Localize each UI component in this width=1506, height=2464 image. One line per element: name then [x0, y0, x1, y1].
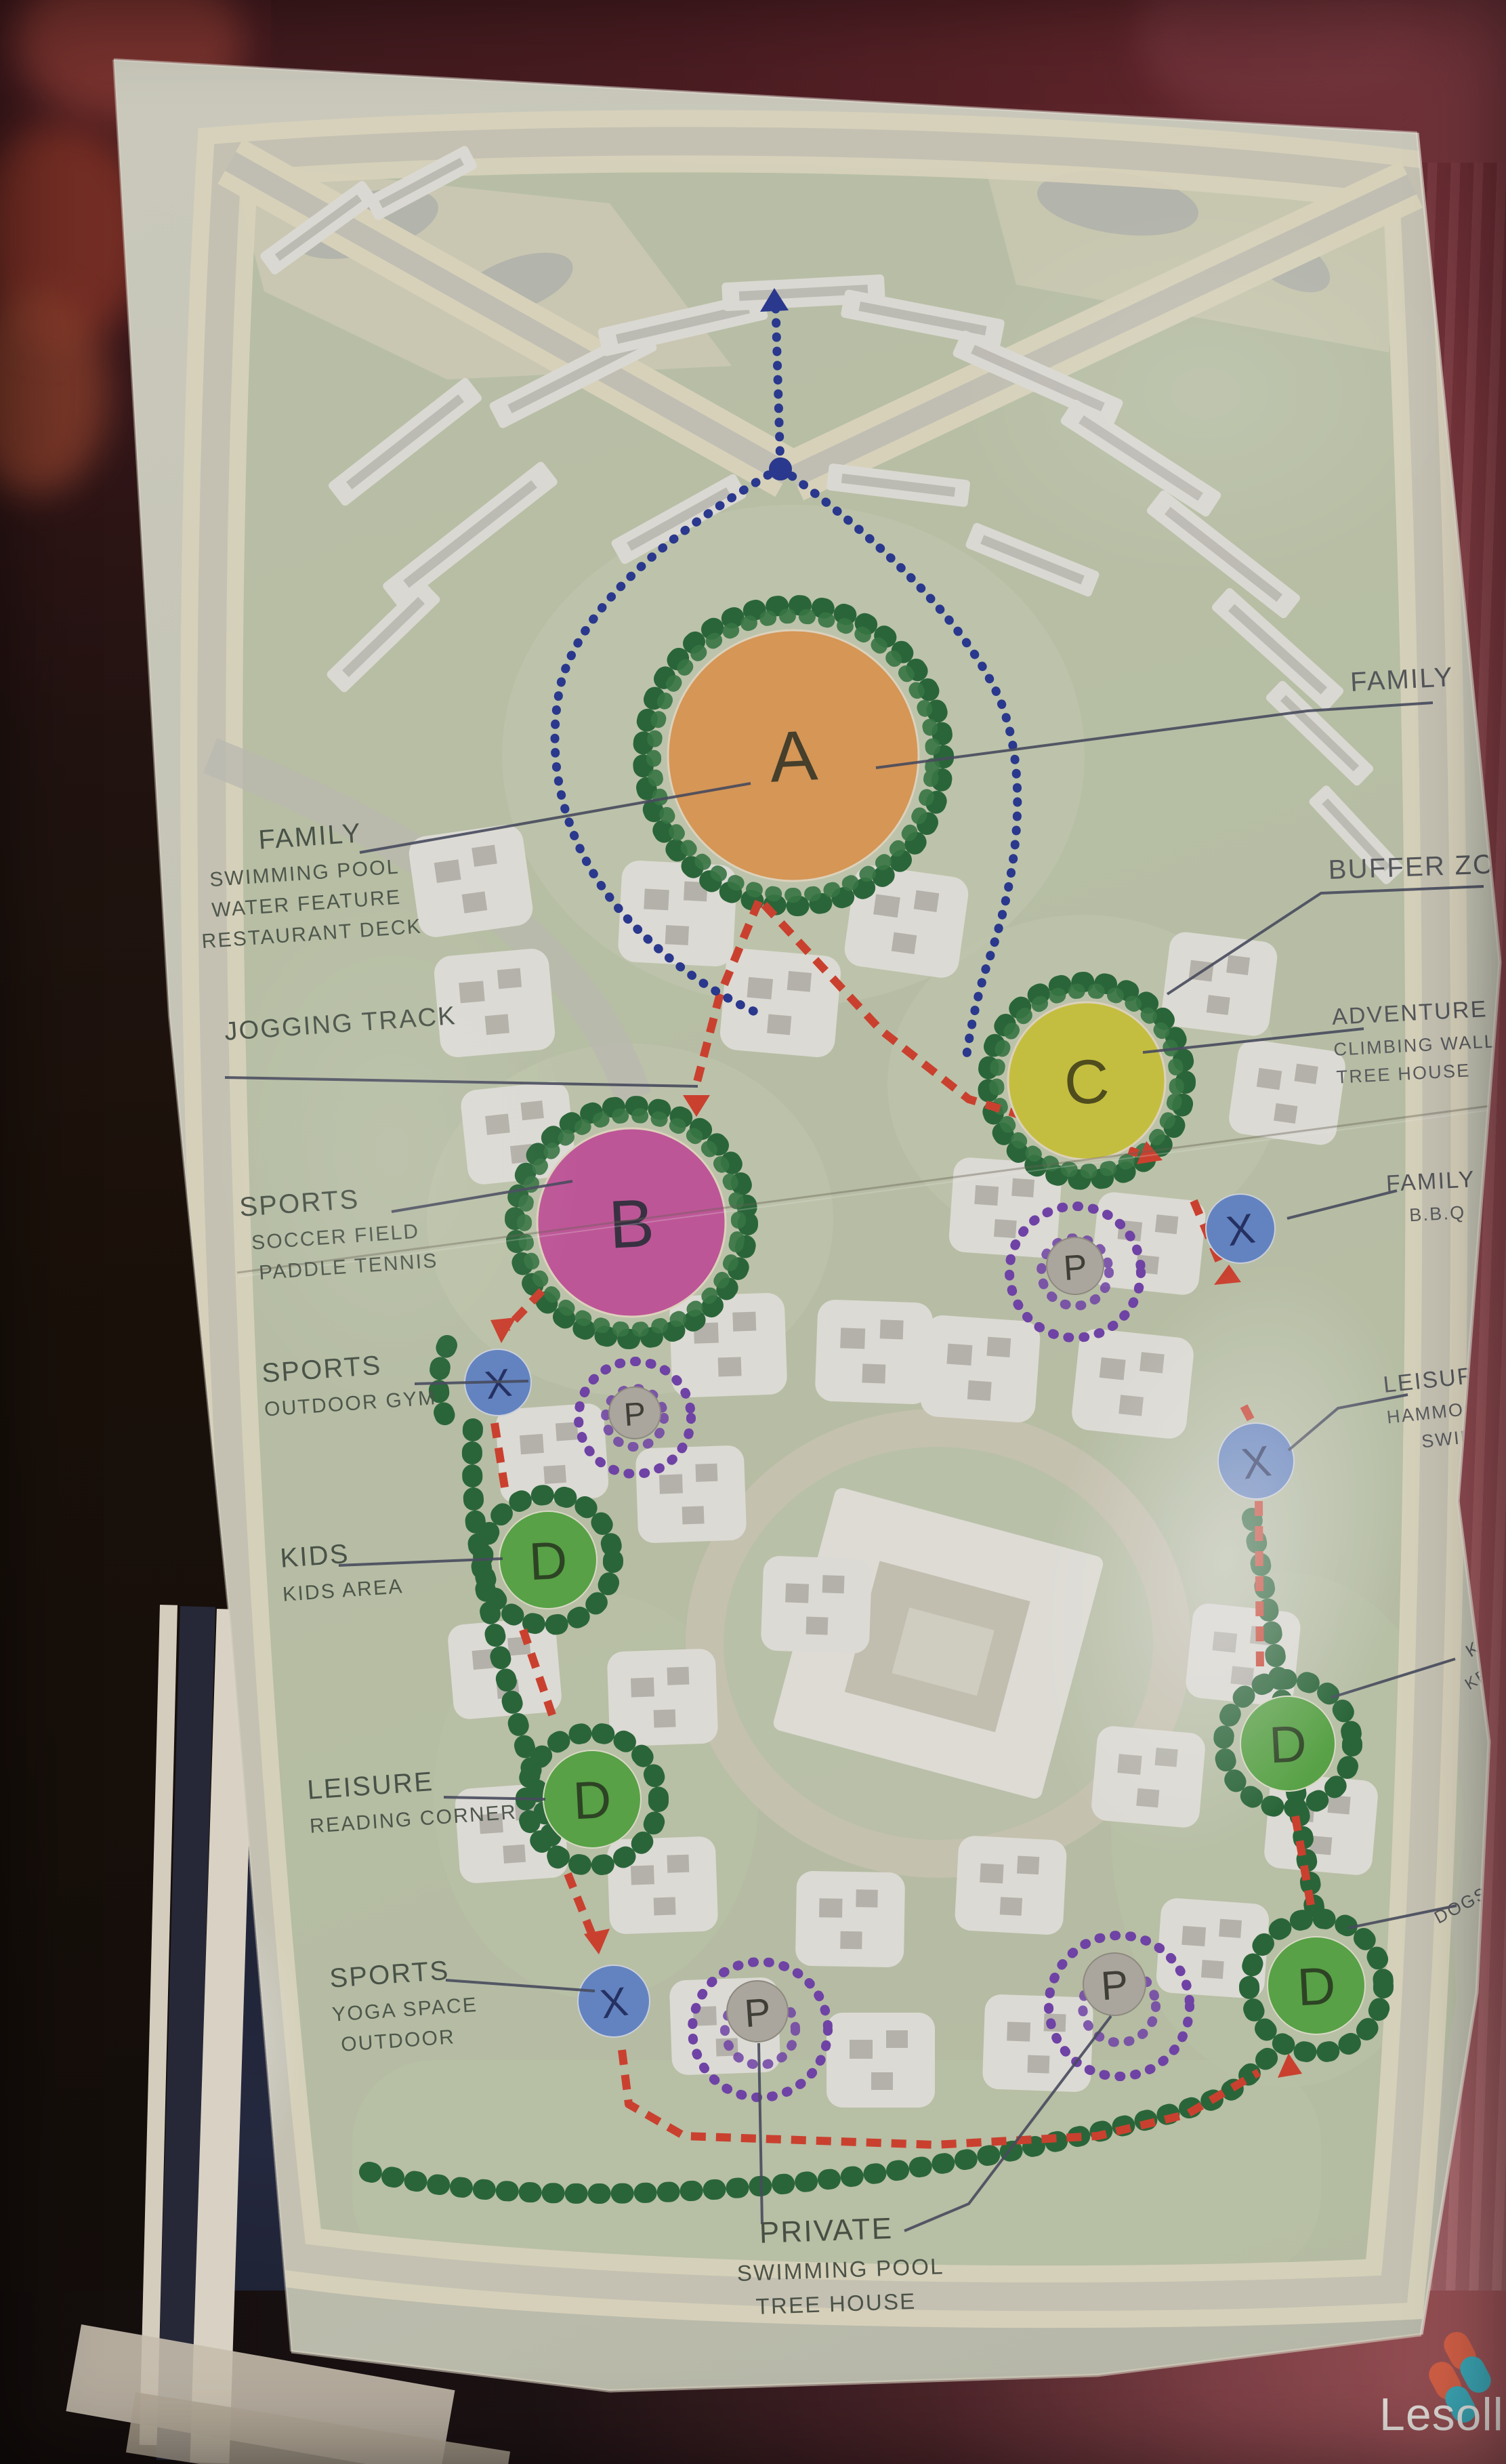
- label-title: FAMILY: [1350, 662, 1455, 698]
- zone-circle-a: A: [668, 630, 919, 881]
- zone-circle-d-bottom: D: [1268, 1937, 1365, 2034]
- parking-letter: P: [1100, 1962, 1130, 2009]
- lesoll-watermark: Lesoll: [1379, 2388, 1504, 2441]
- parking-letter: P: [743, 1990, 772, 2036]
- label-title: BUFFER ZONE: [1328, 848, 1506, 886]
- photo-of-masterplan-brochure: P P P P A B: [0, 0, 1506, 2464]
- zone-letter-d: D: [1296, 1956, 1337, 2017]
- zone-letter-d: D: [528, 1530, 569, 1592]
- label-line: B.B.Q: [1387, 1199, 1466, 1230]
- zone-circle-c: C: [1008, 1002, 1165, 1159]
- x-marker-bbq: X: [1206, 1194, 1275, 1263]
- label-title: PRIVATE: [759, 2210, 944, 2250]
- zone-circle-d-reading: D: [543, 1750, 641, 1848]
- x-marker-yoga: X: [578, 1965, 650, 2037]
- label-buffer-zone: BUFFER ZONE: [1328, 848, 1506, 886]
- zone-letter-d: D: [572, 1769, 613, 1831]
- zone-circle-d-kids: D: [499, 1511, 597, 1609]
- label-private-pool: PRIVATE SWIMMING POOL TREE HOUSE: [735, 2210, 946, 2324]
- label-sports-gym: SPORTS OUTDOOR GYM: [261, 1347, 438, 1425]
- label-title: FAMILY: [1385, 1167, 1465, 1197]
- label-adventure: ADVENTURE CLIMBING WALL TREE HOUSE: [1331, 998, 1471, 1091]
- label-family-bbq: FAMILY B.B.Q: [1385, 1167, 1466, 1230]
- x-marker-hammock: X: [1218, 1423, 1294, 1499]
- zone-circle-d-right: D: [1240, 1696, 1335, 1791]
- parking-letter: P: [1062, 1248, 1089, 1288]
- zone-circle-b: B: [537, 1128, 726, 1317]
- label-sports-yoga: SPORTS YOGA SPACE OUTDOOR: [329, 1954, 481, 2061]
- zone-letter-c: C: [1062, 1046, 1111, 1117]
- label-family-pool: FAMILY SWIMMING POOL WATER FEATURE RESTA…: [257, 815, 423, 953]
- label-kids: KIDS KIDS AREA: [279, 1536, 404, 1610]
- zone-letter-d: D: [1268, 1715, 1308, 1775]
- parking-letter: P: [623, 1396, 647, 1433]
- zone-letter-a: A: [768, 716, 819, 798]
- label-family-right: FAMILY: [1350, 662, 1455, 698]
- label-line: TREE HOUSE: [755, 2283, 946, 2323]
- label-sports-soccer: SPORTS SOCCER FIELD PADDLE TENNIS: [238, 1179, 439, 1290]
